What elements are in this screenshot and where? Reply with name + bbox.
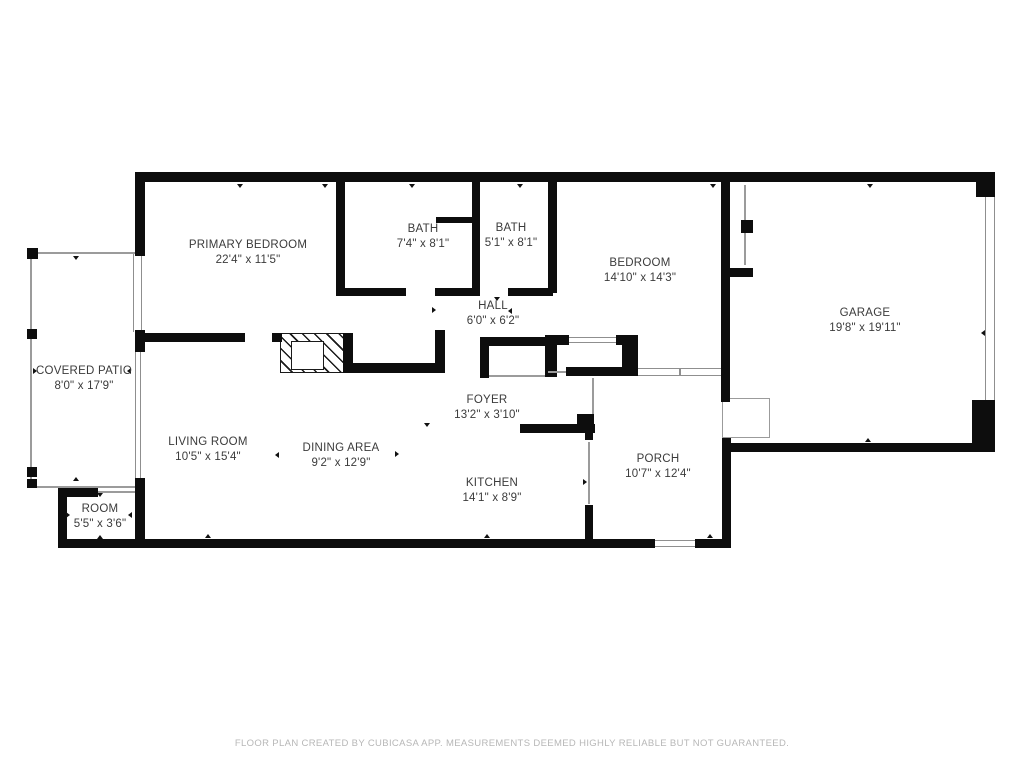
room-name: BATH: [408, 222, 439, 237]
tick: [494, 297, 500, 301]
room-name: ROOM: [82, 502, 119, 517]
wall-closetA-top: [480, 337, 553, 346]
tick: [424, 423, 430, 427]
room-name: DINING AREA: [303, 441, 380, 456]
room-name: KITCHEN: [466, 476, 518, 491]
tick: [395, 451, 399, 457]
room-name: PORCH: [637, 452, 680, 467]
room-label-foyer: FOYER 13'2" x 3'10": [454, 393, 520, 423]
tick: [508, 308, 512, 314]
room-label-kitchen: KITCHEN 14'1" x 8'9": [462, 476, 521, 506]
wall-closetA-left: [480, 337, 489, 378]
room-label-room: ROOM 5'5" x 3'6": [74, 502, 126, 532]
room-label-dining-area: DINING AREA 9'2" x 12'9": [303, 441, 380, 471]
room-label-bath-1: BATH 7'4" x 8'1": [397, 222, 449, 252]
room-dims: 5'1" x 8'1": [485, 236, 537, 251]
wall-garage-door-block: [741, 220, 753, 233]
room-name: GARAGE: [840, 306, 891, 321]
wall-garage-bottom: [731, 443, 995, 452]
wall-hall-north-a: [336, 288, 406, 296]
closetB-slider: [569, 337, 616, 343]
tick: [73, 477, 79, 481]
wall-garage-entry-stub: [730, 268, 753, 277]
wall-bath1-left: [336, 182, 345, 288]
footer-disclaimer: FLOOR PLAN CREATED BY CUBICASA APP. MEAS…: [0, 738, 1024, 749]
tick: [73, 256, 79, 260]
room-dims: 22'4" x 11'5": [216, 253, 281, 268]
tick: [710, 184, 716, 188]
room-label-covered-patio: COVERED PATIO 8'0" x 17'9": [36, 364, 132, 394]
wall-closetB-top-left: [553, 335, 569, 345]
wall-closet1-right: [435, 330, 445, 373]
tick: [97, 493, 103, 497]
wall-hall-north-b: [435, 288, 480, 296]
front-door-line: [588, 442, 590, 504]
wall-bedroom-garage: [721, 182, 730, 402]
room-name: BATH: [496, 221, 527, 236]
wall-exterior-left-upper: [135, 182, 145, 256]
wall-kitchen-porch-lower: [585, 505, 593, 548]
tick: [517, 184, 523, 188]
wall-exterior-left-lower: [135, 478, 145, 548]
tick: [867, 184, 873, 188]
room-dims: 5'5" x 3'6": [74, 517, 126, 532]
wall-primary-south: [135, 333, 245, 342]
tick: [237, 184, 243, 188]
tick: [66, 512, 70, 518]
wall-exterior-bottom: [58, 539, 595, 548]
room-name: LIVING ROOM: [168, 435, 247, 450]
closetA-slider-line: [489, 375, 545, 377]
porch-entry-step: [655, 540, 695, 547]
room-dims: 6'0" x 6'2": [467, 314, 519, 329]
room-label-living-room: LIVING ROOM 10'5" x 15'4": [168, 435, 247, 465]
patio-post: [27, 248, 38, 259]
room-label-porch: PORCH 10'7" x 12'4": [625, 452, 691, 482]
wall-bath-divider: [472, 182, 480, 288]
tick: [97, 535, 103, 539]
room-dims: 9'2" x 12'9": [311, 456, 370, 471]
patio-top-line: [30, 252, 137, 254]
wall-room-top: [58, 488, 98, 497]
patio-post: [27, 329, 37, 339]
wall-exterior-top: [135, 172, 995, 182]
tick: [981, 330, 985, 336]
room-door-line: [98, 491, 135, 493]
patio-post: [27, 479, 37, 488]
utility-platform: [722, 398, 770, 438]
room-dims: 7'4" x 8'1": [397, 237, 449, 252]
tick: [409, 184, 415, 188]
room-name: FOYER: [467, 393, 508, 408]
tick: [432, 307, 436, 313]
living-room-patio-slider: [135, 352, 141, 478]
tick: [707, 534, 713, 538]
wall-garage-corner-tr: [976, 172, 995, 197]
room-label-garage: GARAGE 19'8" x 19'11": [829, 306, 900, 336]
foyer-porch-line: [592, 378, 594, 418]
garage-door-opening: [985, 196, 995, 401]
tick: [484, 534, 490, 538]
tick: [33, 368, 37, 374]
wall-porch-bottom-left: [595, 539, 655, 548]
wall-kitchen-top: [520, 424, 595, 433]
wall-closetB-bottom: [566, 367, 638, 376]
wall-hall-north-c: [508, 288, 553, 296]
tick: [865, 438, 871, 442]
room-name: PRIMARY BEDROOM: [189, 238, 307, 253]
patio-post: [27, 467, 37, 477]
room-dims: 8'0" x 17'9": [54, 379, 113, 394]
wall-closet1-bottom: [345, 363, 445, 373]
tick: [275, 452, 279, 458]
room-name: BEDROOM: [609, 256, 670, 271]
room-label-bath-2: BATH 5'1" x 8'1": [485, 221, 537, 251]
tick: [205, 534, 211, 538]
tick: [583, 479, 587, 485]
wall-kitchen-porch-upper: [585, 418, 593, 440]
room-dims: 19'8" x 19'11": [829, 321, 900, 336]
tick: [127, 368, 131, 374]
room-label-bedroom: BEDROOM 14'10" x 14'3": [604, 256, 676, 286]
room-dims: 13'2" x 3'10": [454, 408, 520, 423]
primary-bedroom-window: [133, 254, 142, 332]
wall-bath1-stub: [436, 217, 472, 223]
room-label-primary-bedroom: PRIMARY BEDROOM 22'4" x 11'5": [189, 238, 307, 268]
wall-primary-door-jamb: [272, 333, 282, 342]
tick: [128, 512, 132, 518]
room-name: COVERED PATIO: [36, 364, 132, 379]
window-mullion: [679, 368, 681, 376]
room-dims: 14'1" x 8'9": [462, 491, 521, 506]
room-name: HALL: [478, 299, 508, 314]
room-dims: 10'7" x 12'4": [625, 467, 691, 482]
patio-left-line: [30, 252, 32, 488]
wall-bath2-right: [548, 182, 557, 293]
floor-plan: PRIMARY BEDROOM 22'4" x 11'5" BATH 7'4" …: [0, 0, 1024, 768]
wall-garage-corner-br: [972, 400, 995, 452]
fireplace-box: [291, 341, 324, 370]
room-dims: 10'5" x 15'4": [175, 450, 241, 465]
wall-porch-right: [722, 438, 731, 548]
room-label-hall: HALL 6'0" x 6'2": [467, 299, 519, 329]
tick: [322, 184, 328, 188]
room-dims: 14'10" x 14'3": [604, 271, 676, 286]
closetB-bottom-line: [548, 371, 566, 373]
